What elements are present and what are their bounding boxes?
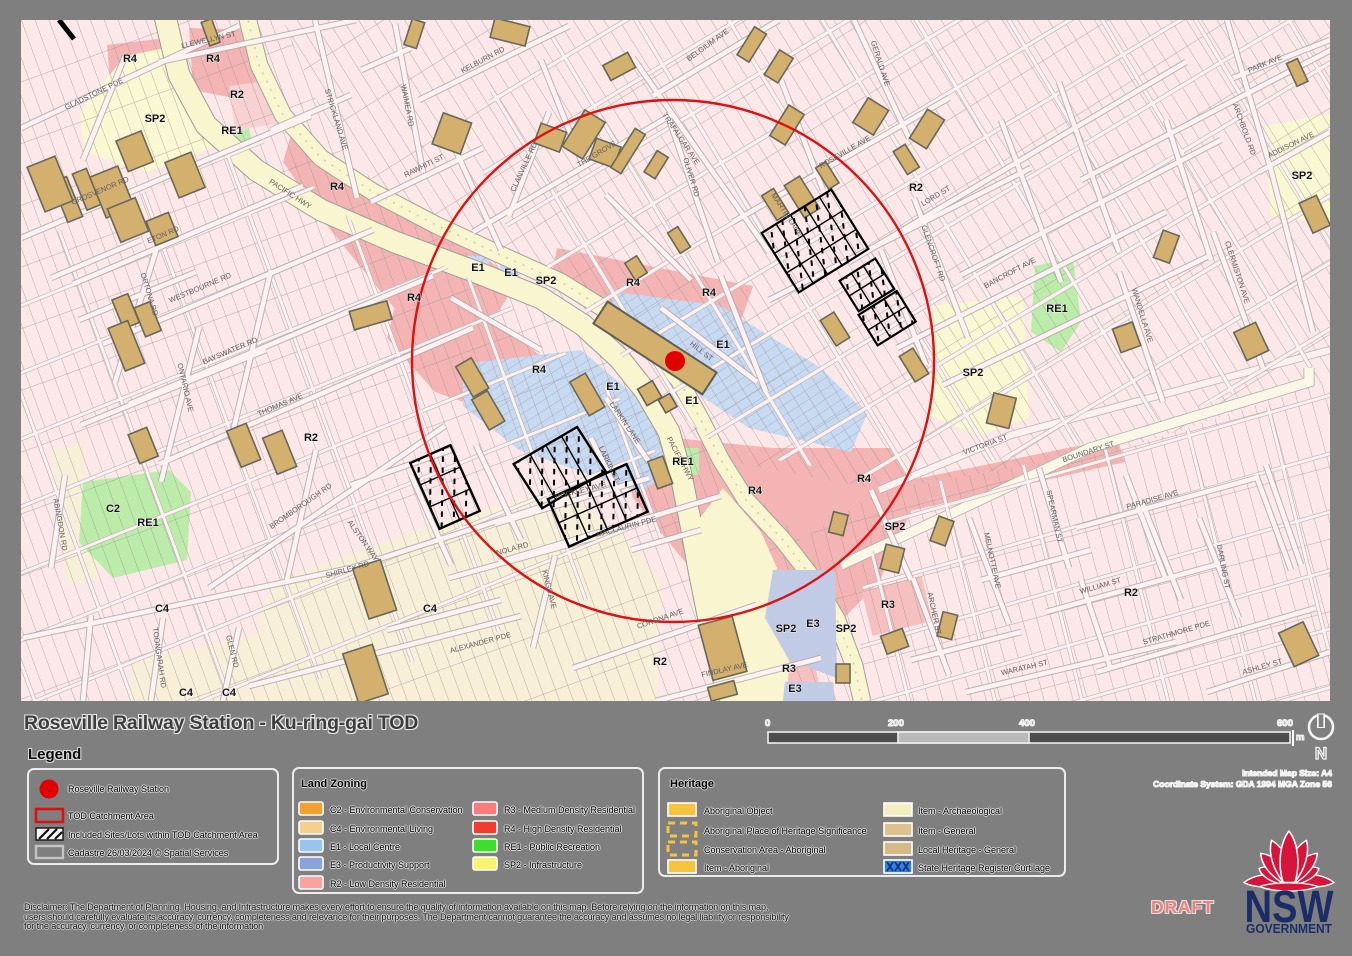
svg-text:SP2: SP2 [963, 367, 984, 379]
svg-text:R4: R4 [532, 364, 547, 376]
svg-text:R4: R4 [206, 53, 221, 65]
svg-text:SP2: SP2 [536, 275, 557, 287]
svg-text:R4: R4 [407, 292, 422, 304]
svg-text:R4: R4 [748, 485, 763, 497]
svg-text:R4: R4 [702, 287, 717, 299]
svg-text:R3: R3 [782, 663, 796, 675]
svg-text:SP2: SP2 [836, 623, 857, 635]
svg-text:E1: E1 [471, 262, 484, 274]
svg-text:SP2: SP2 [776, 623, 797, 635]
svg-text:SP2: SP2 [145, 113, 166, 125]
svg-text:R4: R4 [626, 277, 641, 289]
svg-text:C4: C4 [179, 687, 194, 699]
svg-text:RE1: RE1 [221, 125, 242, 137]
svg-text:R4: R4 [857, 473, 872, 485]
svg-text:E1: E1 [716, 339, 729, 351]
svg-text:R2: R2 [1124, 587, 1138, 599]
svg-text:R3: R3 [881, 599, 895, 611]
svg-text:RE1: RE1 [672, 456, 693, 468]
svg-text:C4: C4 [423, 603, 438, 615]
svg-text:R2: R2 [909, 182, 923, 194]
svg-text:N: N [1315, 744, 1327, 763]
svg-text:R2: R2 [653, 656, 667, 668]
svg-text:R2: R2 [230, 89, 244, 101]
svg-text:SP2: SP2 [885, 521, 906, 533]
svg-text:E1: E1 [685, 395, 698, 407]
svg-text:C2: C2 [106, 503, 120, 515]
svg-text:RE1: RE1 [137, 517, 158, 529]
svg-text:E3: E3 [806, 618, 819, 630]
svg-text:E1: E1 [606, 381, 619, 393]
svg-text:RE1: RE1 [1046, 303, 1067, 315]
svg-text:E1: E1 [504, 267, 517, 279]
svg-text:E3: E3 [788, 683, 801, 695]
svg-text:SP2: SP2 [1292, 170, 1313, 182]
svg-text:C4: C4 [155, 603, 170, 615]
svg-text:GOVERNMENT: GOVERNMENT [1246, 922, 1332, 936]
svg-text:R4: R4 [123, 53, 138, 65]
svg-text:R4: R4 [330, 181, 345, 193]
svg-text:C4: C4 [222, 687, 237, 699]
svg-text:R2: R2 [304, 432, 318, 444]
